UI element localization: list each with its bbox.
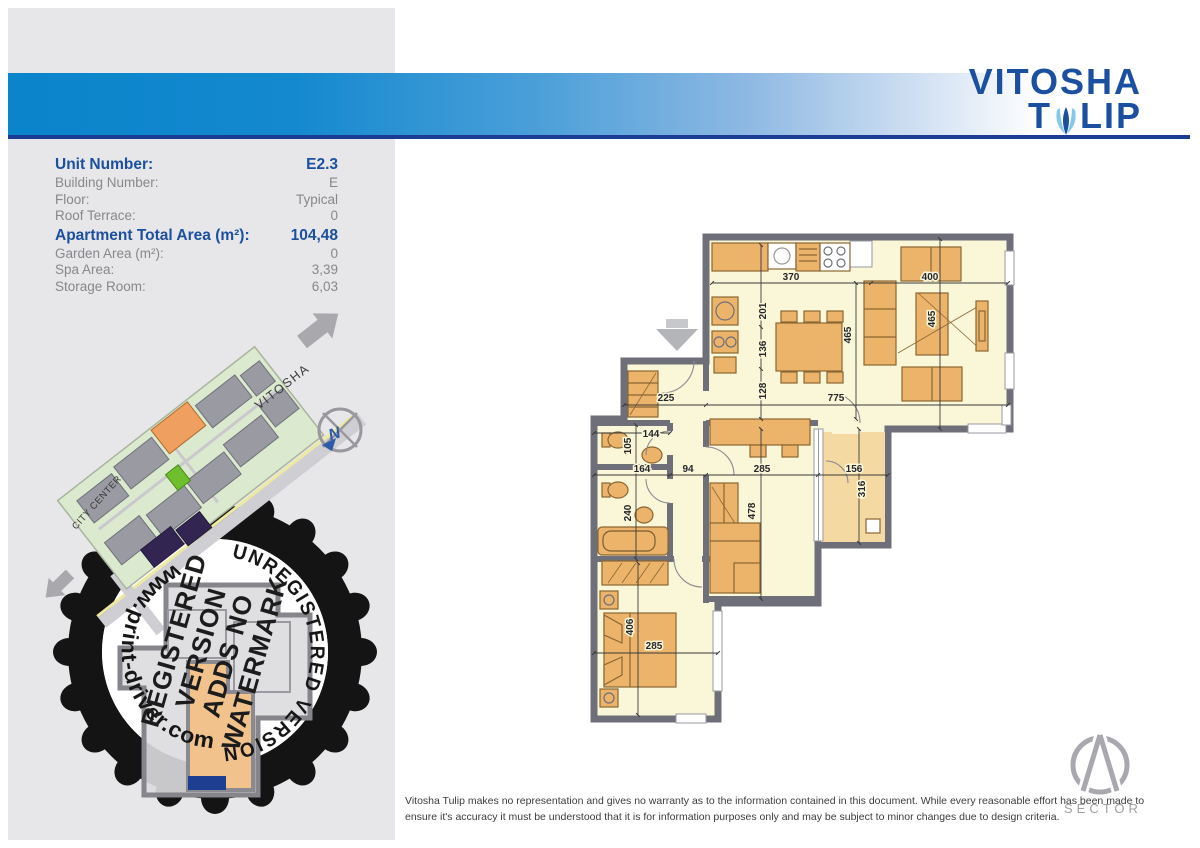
spec-row-floor: Floor: Typical bbox=[55, 192, 338, 209]
spec-row-total-area: Apartment Total Area (m²): 104,48 bbox=[55, 225, 338, 246]
spec-label: Unit Number: bbox=[55, 154, 153, 175]
balcony-door-opening bbox=[832, 423, 860, 434]
disclaimer-text: Vitosha Tulip makes no representation an… bbox=[405, 794, 1165, 826]
dim-285-bottom: 285 bbox=[646, 641, 663, 652]
brand-logo-line2: T LIP bbox=[880, 98, 1142, 134]
dim-136: 136 bbox=[758, 340, 769, 357]
spec-row-storage-room: Storage Room: 6,03 bbox=[55, 279, 338, 296]
spec-row-unit-number: Unit Number: E2.3 bbox=[55, 154, 338, 175]
floor-plan: 370 400 201 136 465 465 225 775 128 144 … bbox=[578, 223, 1022, 747]
spec-row-spa-area: Spa Area: 3,39 bbox=[55, 262, 338, 279]
dim-225: 225 bbox=[658, 393, 675, 404]
spec-value: E bbox=[329, 175, 338, 192]
brand-logo: VITOSHA T LIP bbox=[880, 64, 1142, 134]
spec-value: 0 bbox=[330, 246, 338, 263]
brand-logo-line2-pre: T bbox=[1028, 98, 1052, 134]
entrance-arrow bbox=[656, 319, 698, 351]
tulip-icon bbox=[1053, 104, 1079, 138]
spec-label: Floor: bbox=[55, 192, 90, 209]
dim-400: 400 bbox=[922, 272, 939, 283]
unit-specs: Unit Number: E2.3 Building Number: E Flo… bbox=[55, 154, 338, 295]
spec-value: 104,48 bbox=[291, 225, 338, 246]
dim-406: 406 bbox=[625, 618, 636, 635]
dim-465-left: 465 bbox=[843, 326, 854, 343]
dim-144: 144 bbox=[643, 429, 660, 440]
spec-value: E2.3 bbox=[306, 154, 338, 175]
spec-row-roof-terrace: Roof Terrace: 0 bbox=[55, 208, 338, 225]
dim-156: 156 bbox=[846, 464, 863, 475]
spec-value: 0 bbox=[330, 208, 338, 225]
spec-value: 6,03 bbox=[312, 279, 338, 296]
dim-164: 164 bbox=[634, 464, 651, 475]
spec-label: Storage Room: bbox=[55, 279, 146, 296]
dim-316: 316 bbox=[857, 480, 868, 497]
spec-label: Roof Terrace: bbox=[55, 208, 136, 225]
dim-201: 201 bbox=[758, 302, 769, 319]
brand-logo-line2-post: LIP bbox=[1080, 98, 1142, 134]
spec-label: Garden Area (m²): bbox=[55, 246, 164, 263]
spec-value: Typical bbox=[296, 192, 338, 209]
dim-370: 370 bbox=[783, 272, 800, 283]
sector-logo-wordmark: SECTOR bbox=[1064, 801, 1142, 816]
dim-240: 240 bbox=[623, 504, 634, 521]
dim-285-mid: 285 bbox=[754, 464, 771, 475]
spec-label: Building Number: bbox=[55, 175, 159, 192]
spec-value: 3,39 bbox=[312, 262, 338, 279]
spec-row-building-number: Building Number: E bbox=[55, 175, 338, 192]
dim-465-right: 465 bbox=[927, 310, 938, 327]
vitosha-arrow-icon bbox=[292, 312, 348, 355]
spec-label: Spa Area: bbox=[55, 262, 114, 279]
brochure-page: { "logo": { "line1": "VITOSHA", "line2_p… bbox=[0, 0, 1200, 848]
spec-row-garden-area: Garden Area (m²): 0 bbox=[55, 246, 338, 263]
dim-94: 94 bbox=[682, 464, 694, 475]
dim-128: 128 bbox=[758, 382, 769, 399]
dim-478: 478 bbox=[747, 502, 758, 519]
spec-label: Apartment Total Area (m²): bbox=[55, 225, 250, 246]
dim-775: 775 bbox=[828, 393, 845, 404]
dim-105: 105 bbox=[623, 437, 634, 454]
sector-logo: SECTOR bbox=[1056, 731, 1144, 823]
header-underline bbox=[8, 135, 1190, 139]
watermark-overlay: UNREGISTERED VERSION www.print-driver.co… bbox=[48, 482, 382, 822]
bedroom-balcony-window bbox=[814, 429, 823, 541]
